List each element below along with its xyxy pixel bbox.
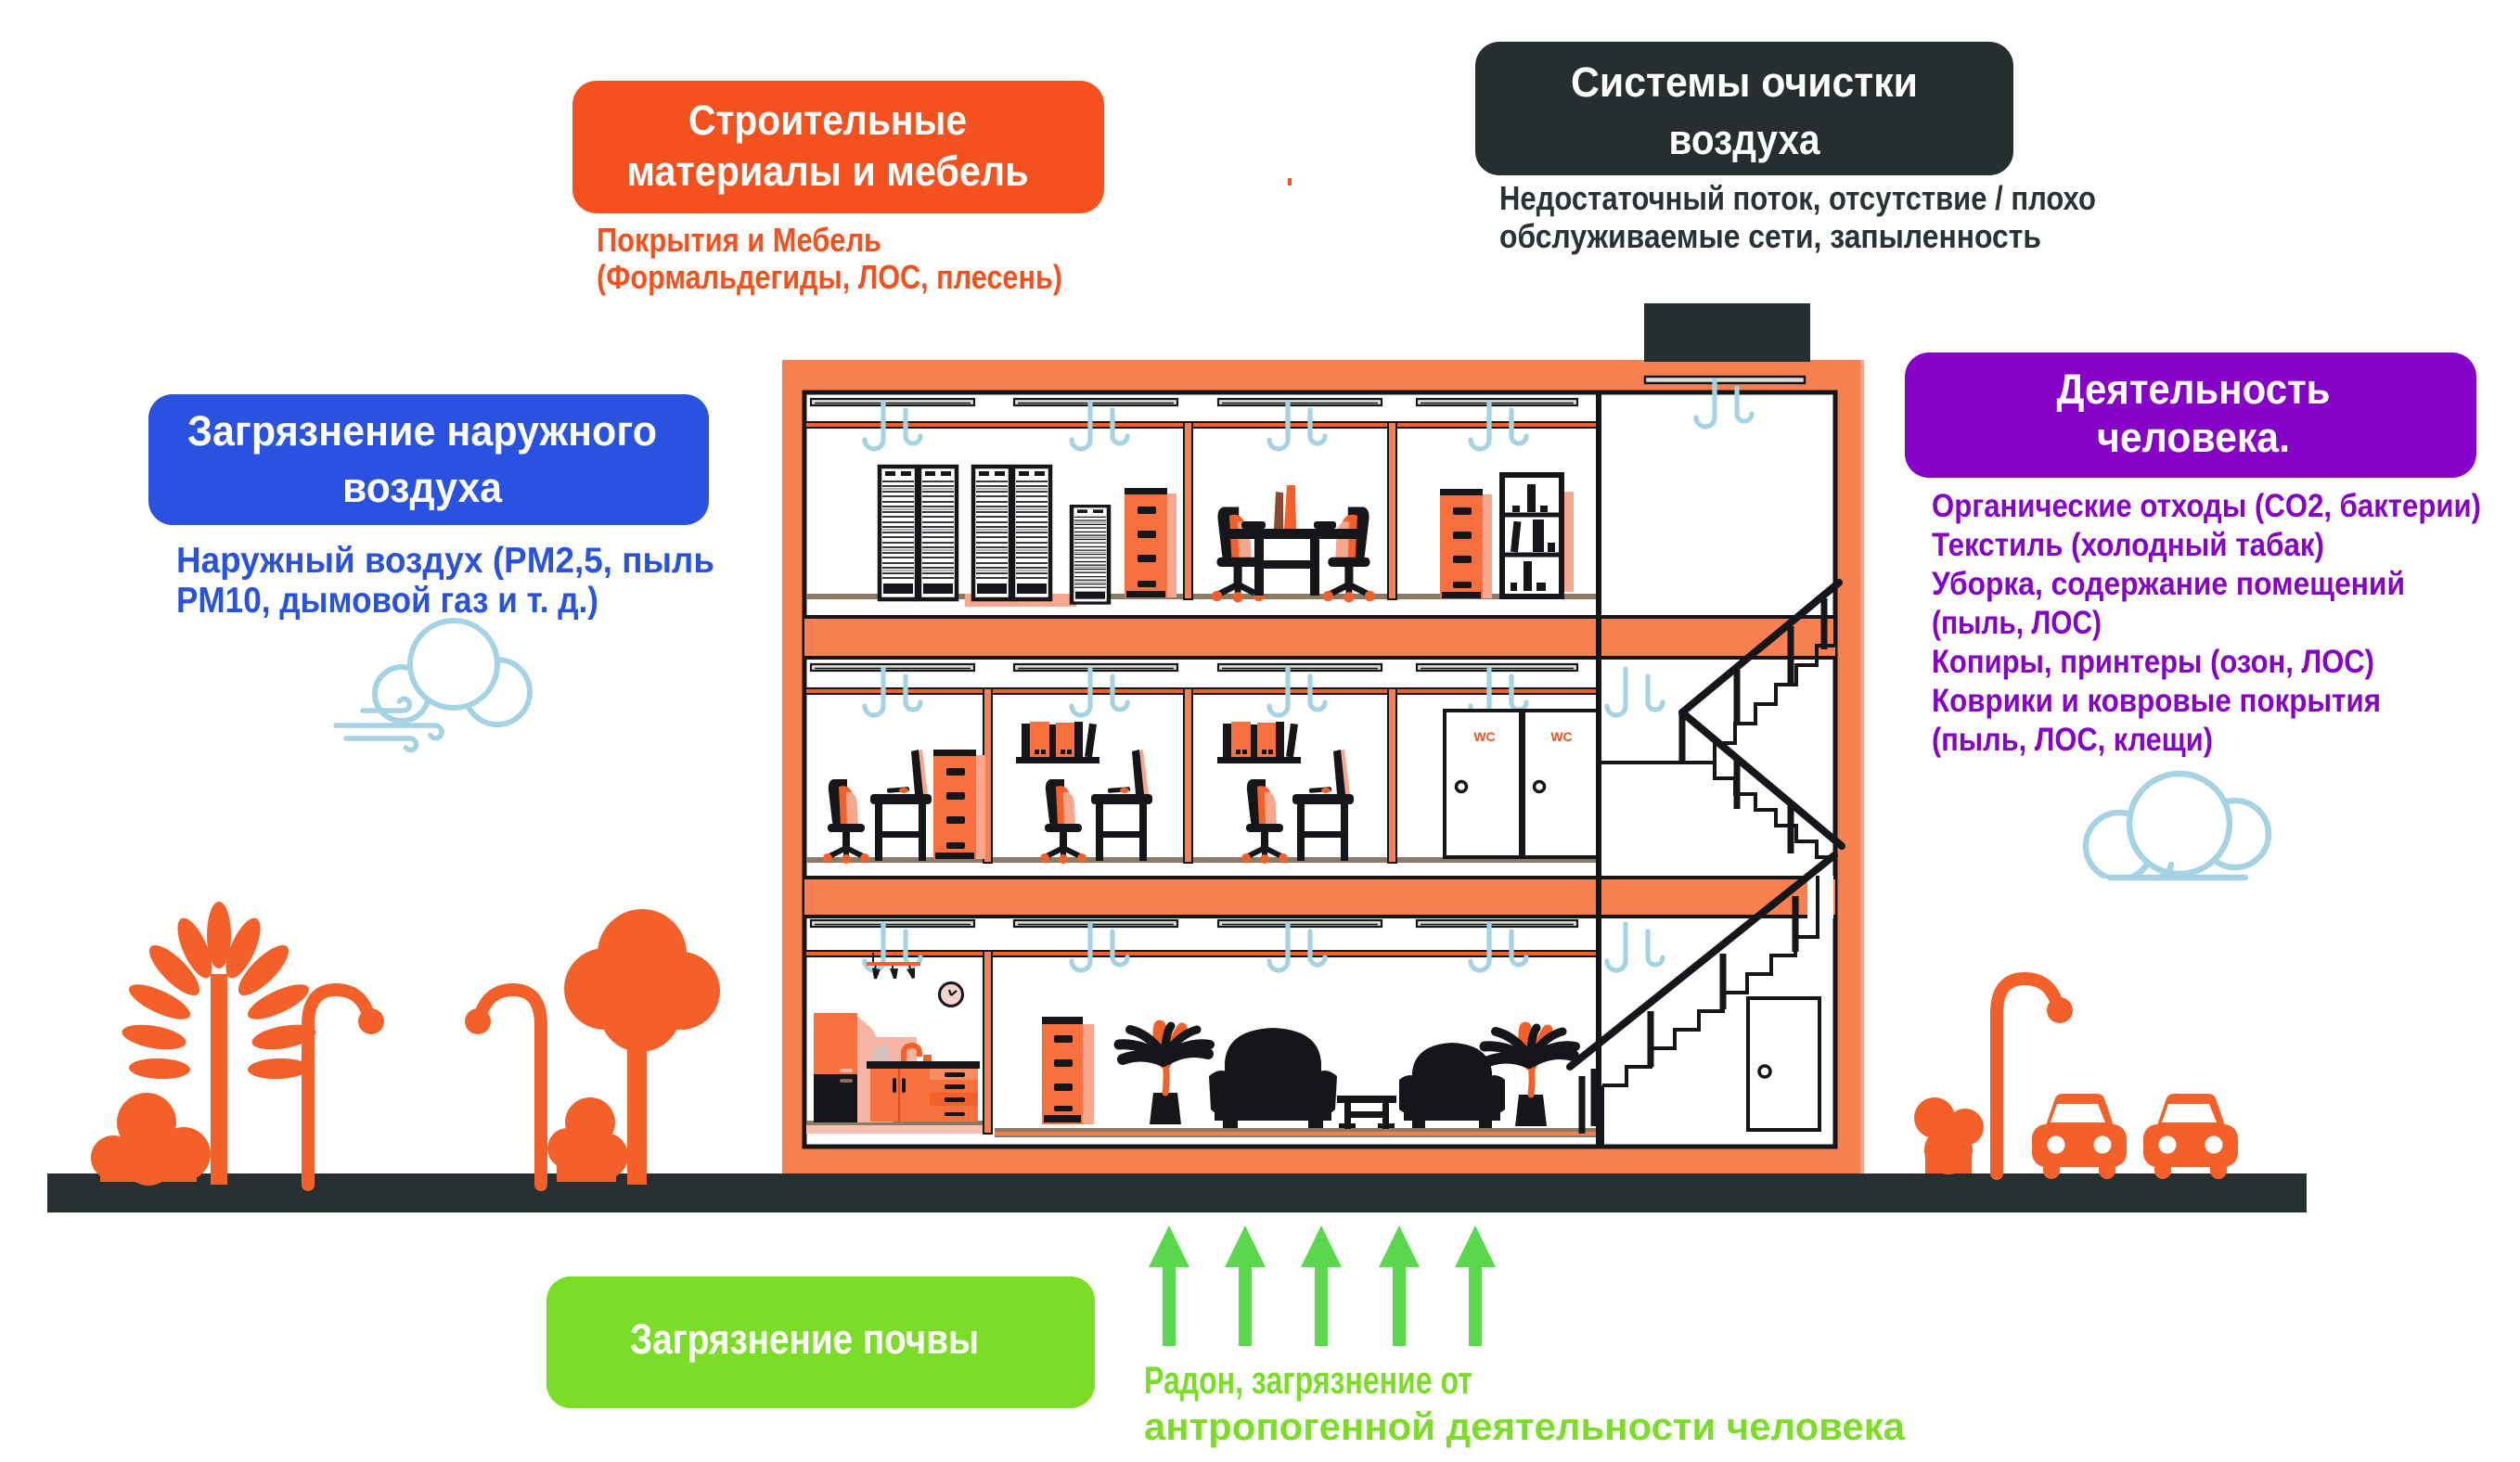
- svg-text:воздуха: воздуха: [342, 464, 503, 511]
- svg-text:обслуживаемые сети, запыленнос: обслуживаемые сети, запыленность: [1499, 217, 2041, 255]
- svg-text:Органические отходы (CO2, бакт: Органические отходы (CO2, бактерии): [1932, 488, 2481, 524]
- svg-text:Наружный воздух (PM2,5, пыль: Наружный воздух (PM2,5, пыль: [176, 541, 714, 581]
- svg-text:человека.: человека.: [2097, 414, 2290, 461]
- svg-text:Деятельность: Деятельность: [2057, 365, 2331, 413]
- svg-text:(пыль, ЛОС): (пыль, ЛОС): [1932, 605, 2102, 641]
- svg-text:Покрытия и Мебель: Покрытия и Мебель: [597, 221, 881, 259]
- svg-text:(Формальдегиды, ЛОС, плесень): (Формальдегиды, ЛОС, плесень): [597, 258, 1062, 296]
- svg-text:Коврики и ковровые покрытия: Коврики и ковровые покрытия: [1932, 683, 2381, 719]
- svg-text:Копиры, принтеры (озон, ЛОС): Копиры, принтеры (озон, ЛОС): [1932, 644, 2374, 680]
- svg-text:Строительные: Строительные: [688, 96, 967, 144]
- svg-text:Уборка, содержание помещений: Уборка, содержание помещений: [1932, 566, 2405, 602]
- svg-text:Недостаточный поток, отсутстви: Недостаточный поток, отсутствие / плохо: [1499, 179, 2096, 217]
- svg-text:Текстиль (холодный табак): Текстиль (холодный табак): [1932, 527, 2324, 563]
- svg-text:WC: WC: [1550, 729, 1572, 744]
- svg-text:(пыль, ЛОС, клещи): (пыль, ЛОС, клещи): [1932, 722, 2213, 758]
- svg-text:Загрязнение почвы: Загрязнение почвы: [630, 1315, 979, 1363]
- svg-text:материалы и мебель: материалы и мебель: [627, 147, 1029, 195]
- svg-text:Загрязнение наружного: Загрязнение наружного: [187, 407, 657, 455]
- svg-text:антропогенной деятельности чел: антропогенной деятельности человека: [1144, 1404, 1906, 1448]
- svg-text:PM10, дымовой газ и т. д.): PM10, дымовой газ и т. д.): [176, 581, 598, 621]
- svg-text:WC: WC: [1473, 729, 1495, 744]
- svg-text:Радон, загрязнение от: Радон, загрязнение от: [1144, 1358, 1472, 1402]
- svg-text:Системы очистки: Системы очистки: [1571, 58, 1918, 106]
- svg-text:воздуха: воздуха: [1669, 116, 1821, 163]
